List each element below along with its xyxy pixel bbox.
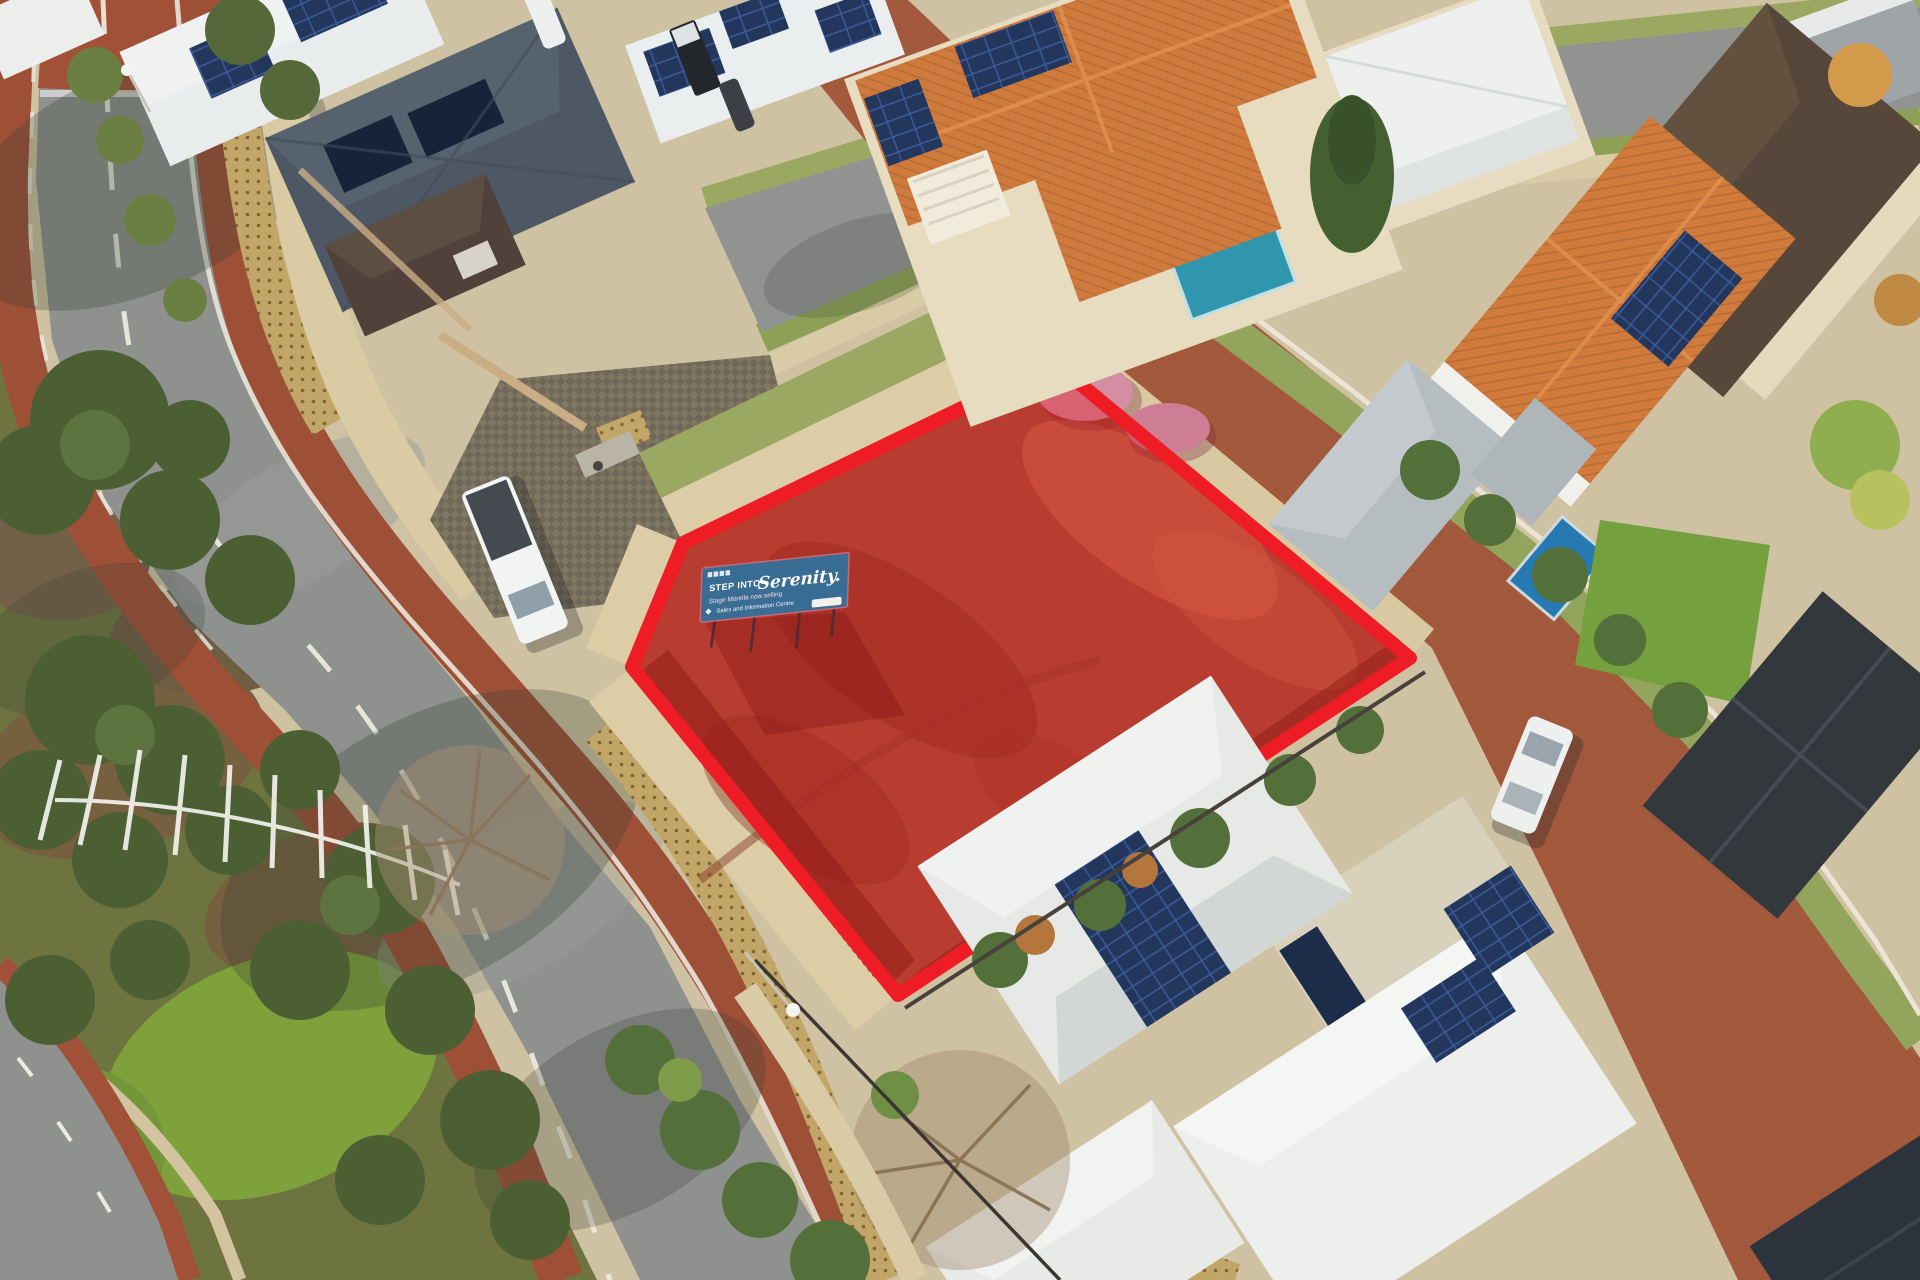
aerial-photo: STEP INTO Serenity. Stage Morella now se… [0,0,1920,1280]
screenshot-root: STEP INTO Serenity. Stage Morella now se… [0,0,1920,1280]
